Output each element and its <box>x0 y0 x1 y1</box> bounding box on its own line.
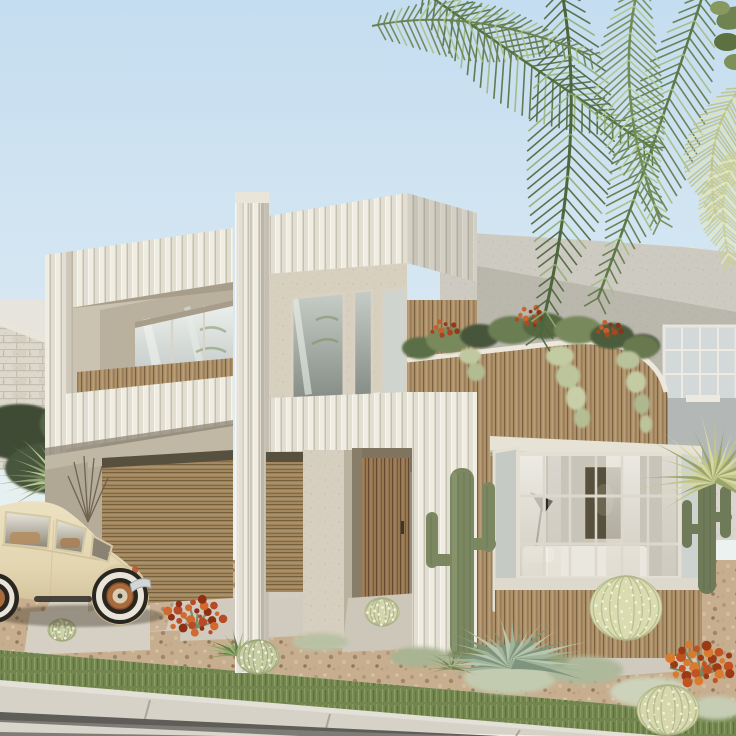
barrel-cactus <box>590 576 662 640</box>
bay-glass[interactable] <box>518 454 680 578</box>
entry-door-handle[interactable] <box>401 521 404 534</box>
barrel-cactus <box>365 598 399 626</box>
scene-canvas <box>0 0 736 736</box>
car-rear-wheel <box>92 568 148 624</box>
garage-door-right[interactable] <box>266 452 304 592</box>
neighbour-railing <box>686 395 720 402</box>
bay-curtain <box>520 455 546 577</box>
architectural-rendering <box>0 0 736 736</box>
upper-window-a[interactable] <box>292 293 344 400</box>
bay-curtain <box>662 455 676 577</box>
barrel-cactus <box>637 685 699 735</box>
upper-window-b[interactable] <box>354 290 372 397</box>
central-fluted-column <box>235 192 269 673</box>
barrel-cactus <box>237 640 279 674</box>
upper-window-c[interactable] <box>382 288 406 396</box>
car-runningboard <box>34 596 92 602</box>
bay-curtain <box>548 455 561 577</box>
